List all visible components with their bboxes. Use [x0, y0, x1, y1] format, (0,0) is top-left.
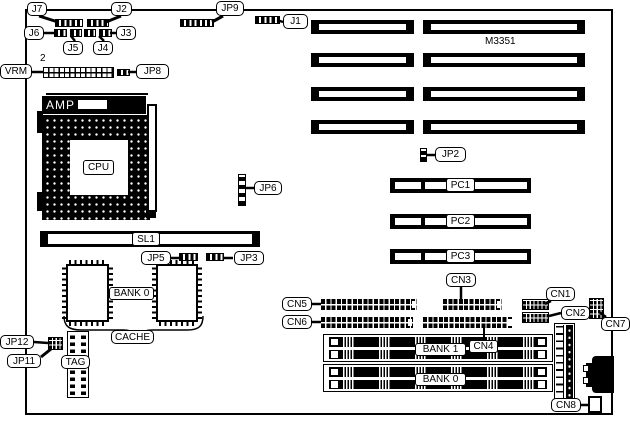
isa-slot: [423, 87, 585, 101]
motherboard-diagram: M3351 2 AMP: [0, 0, 630, 422]
jp9-header: [180, 19, 214, 27]
pci-key-notch: [421, 251, 425, 262]
label-jp12: JP12: [0, 335, 34, 349]
label-cn6: CN6: [282, 315, 312, 329]
label-cn2: CN2: [561, 306, 590, 320]
socket-tab: [37, 111, 43, 133]
isa-slot: [311, 53, 414, 67]
label-pc1: PC1: [446, 178, 475, 192]
label-jp11: JP11: [7, 354, 41, 368]
label-cn1: CN1: [546, 287, 575, 301]
heatsink-edge: [46, 93, 148, 95]
amp-window: [78, 100, 107, 109]
label-jp5: JP5: [141, 251, 171, 265]
j7-header: [55, 19, 83, 27]
chip-pins: [198, 267, 202, 319]
label-jp6: JP6: [254, 181, 282, 195]
label-cn4: CN4: [469, 340, 498, 353]
keyboard-connector: [592, 356, 614, 393]
j6-header: [54, 29, 67, 37]
j5-header: [70, 29, 82, 37]
j2-header: [87, 19, 109, 27]
isa-slot: [423, 53, 585, 67]
label-j4: J4: [93, 41, 113, 55]
j3-header: [99, 29, 112, 37]
label-jp2: JP2: [435, 147, 466, 162]
label-pc2: PC2: [446, 214, 475, 228]
label-bank0: BANK 0: [415, 373, 466, 386]
zif-lever-bar: [147, 104, 157, 212]
chip-pins: [62, 267, 66, 319]
label-j2: J2: [111, 2, 132, 16]
amp-heatsink: AMP: [42, 96, 146, 114]
pci-key-notch: [421, 180, 425, 191]
socket-tab: [37, 192, 43, 211]
label-cache: CACHE: [111, 330, 154, 344]
amp-label: AMP: [46, 98, 75, 112]
j1-header: [255, 16, 280, 24]
keyboard-tab: [583, 365, 589, 372]
label-cn8: CN8: [551, 398, 581, 412]
label-j1: J1: [283, 14, 308, 29]
power-pins: [566, 325, 573, 398]
label-sl1: SL1: [132, 232, 160, 246]
cn2-block: [522, 312, 549, 323]
j4-header: [84, 29, 96, 37]
cn3-header: [443, 299, 502, 310]
label-bank1: BANK 1: [415, 343, 466, 356]
cn1-block: [522, 299, 549, 310]
cn5-header: [321, 299, 417, 310]
label-j5: J5: [63, 41, 83, 55]
label-j7: J7: [27, 2, 47, 16]
keyboard-tab: [583, 377, 589, 384]
jp11-jp12-block: [48, 337, 63, 350]
power-connector: [554, 323, 575, 400]
isa-slot: [311, 87, 414, 101]
isa-slot: [311, 120, 414, 134]
jp8-jumper: [117, 69, 130, 76]
pci-key-notch: [421, 216, 425, 227]
label-cpu: CPU: [83, 160, 114, 175]
power-pins: [556, 325, 564, 398]
label-vrm: VRM: [0, 64, 32, 79]
label-jp8: JP8: [136, 64, 169, 79]
isa-slot: [311, 20, 414, 34]
label-jp9: JP9: [216, 1, 244, 16]
label-j6: J6: [24, 26, 44, 40]
isa-slot: [423, 20, 585, 34]
cache-chip: [156, 264, 198, 322]
label-cn5: CN5: [282, 297, 312, 311]
jp6-header: [238, 174, 246, 206]
cn7-block: [589, 298, 604, 319]
board-model-text: M3351: [485, 36, 516, 47]
label-cn7: CN7: [601, 317, 630, 331]
cn4-header: [423, 317, 513, 328]
label-j3: J3: [116, 26, 136, 40]
cn6-header: [321, 317, 413, 328]
cache-chip: [66, 264, 109, 322]
label-jp3: JP3: [234, 251, 264, 265]
label-cn3: CN3: [446, 273, 476, 287]
label-tag: TAG: [61, 355, 90, 369]
jp3-header: [206, 253, 224, 261]
vrm-connector: [43, 67, 114, 78]
jp2-jumper: [420, 148, 427, 162]
vrm-pin2-text: 2: [40, 53, 46, 64]
label-pc3: PC3: [446, 249, 475, 263]
label-cache-bank0: BANK 0: [109, 287, 154, 300]
cn8-connector: [588, 396, 602, 413]
isa-slot: [423, 120, 585, 134]
